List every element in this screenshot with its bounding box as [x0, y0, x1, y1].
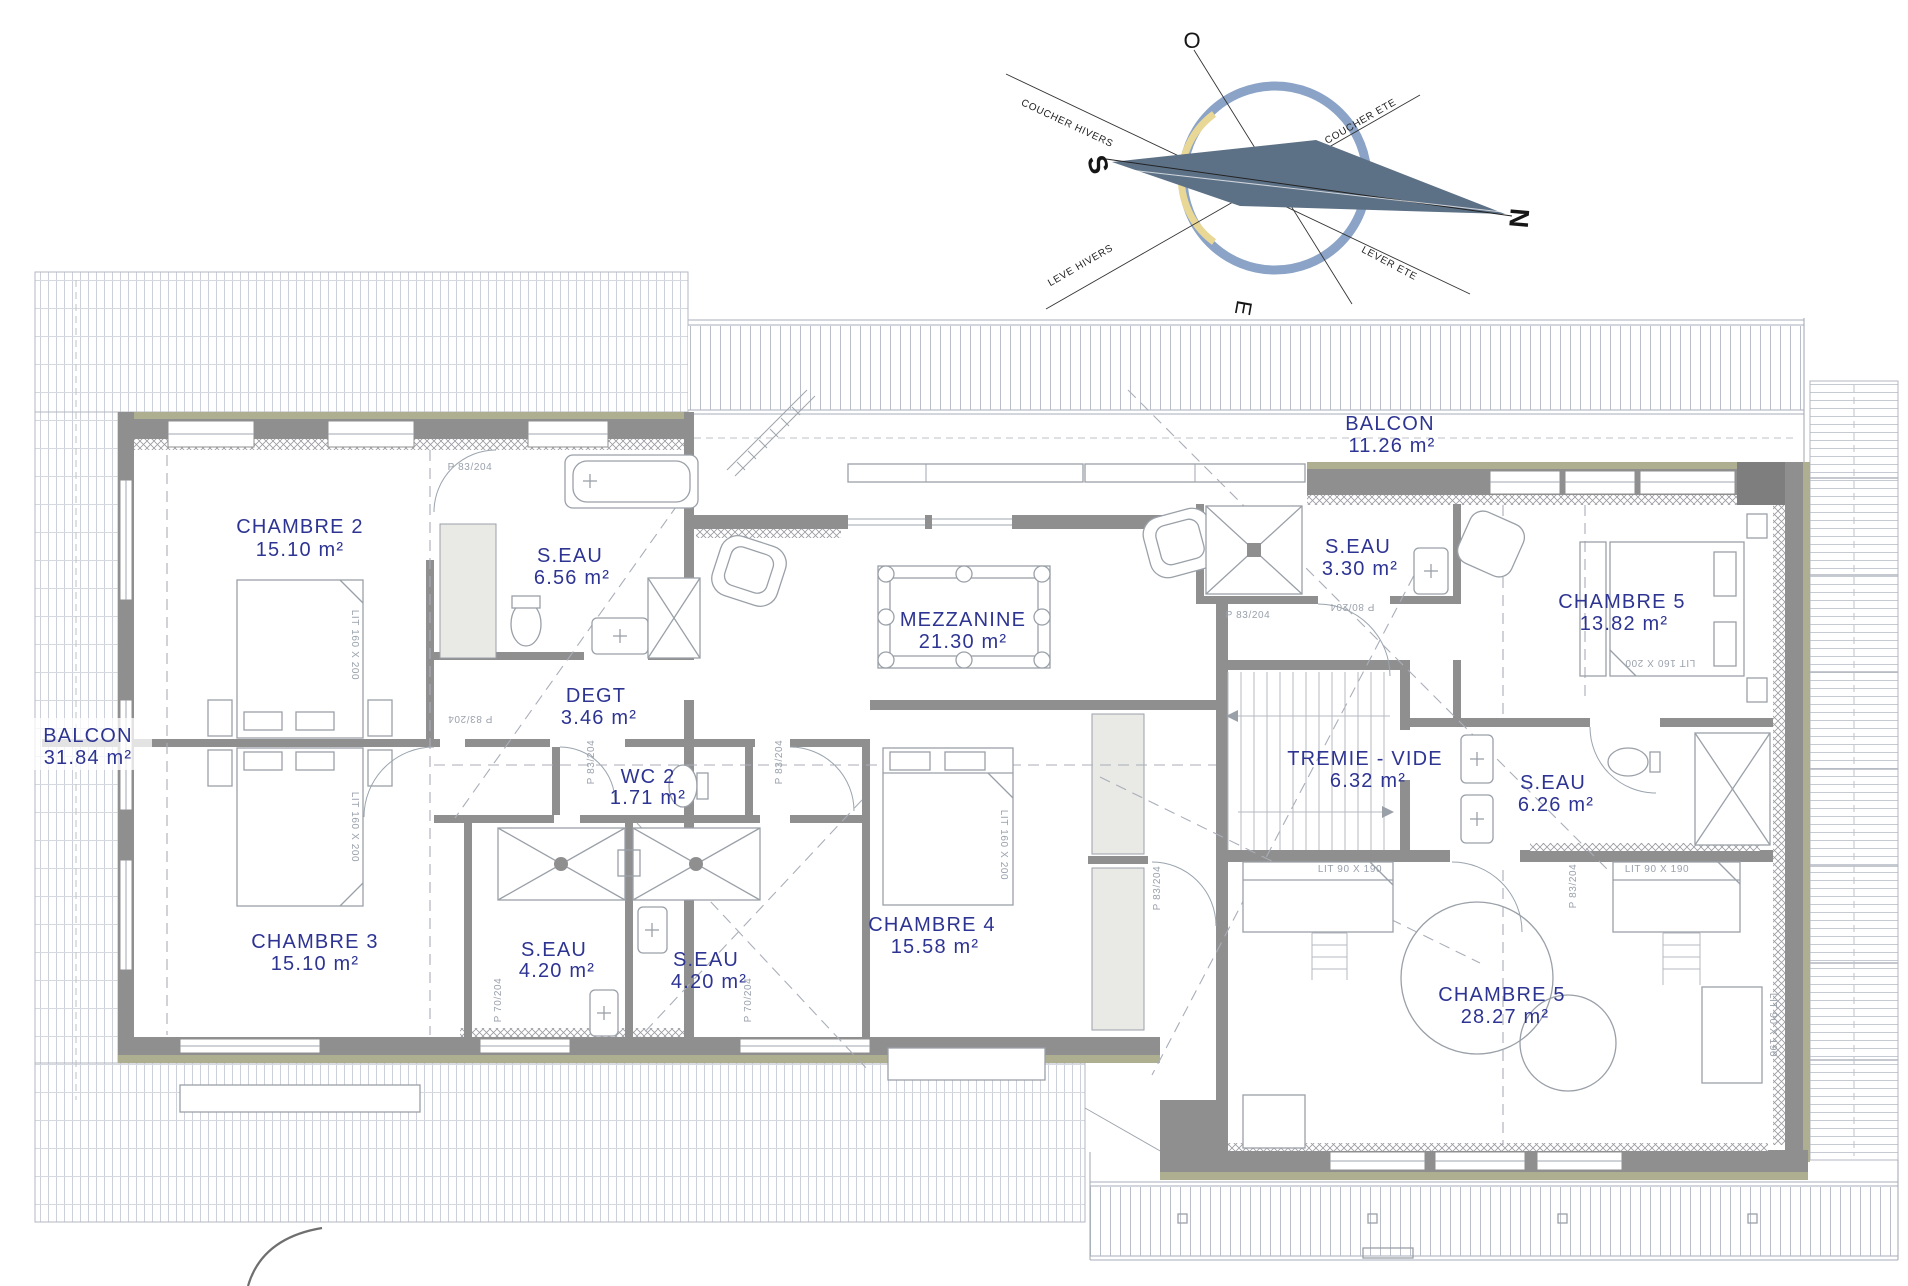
- wardrobe: [440, 524, 496, 658]
- svg-text:6.32 m²: 6.32 m²: [1330, 770, 1406, 792]
- sink-icon: [592, 618, 648, 654]
- shower-icon: [618, 828, 760, 900]
- room-label-seau-330: S.EAU 3.30 m²: [1322, 536, 1398, 580]
- svg-text:LEVER ETE: LEVER ETE: [1360, 245, 1419, 284]
- room-label-chambre5-haut: CHAMBRE 5 13.82 m²: [1558, 591, 1686, 635]
- svg-text:CHAMBRE 2: CHAMBRE 2: [236, 516, 364, 538]
- room-label-seau-420-gauche: S.EAU 4.20 m²: [519, 939, 595, 982]
- svg-text:BALCON: BALCON: [1345, 413, 1434, 435]
- room-label-balcon-ouest: BALCON 31.84 m²: [28, 718, 152, 770]
- toilet-icon: [1608, 748, 1660, 776]
- armchair-icon: [707, 531, 791, 611]
- room-label-wc2: WC 2 1.71 m²: [610, 766, 686, 809]
- compass-east: E: [1230, 299, 1257, 318]
- svg-text:31.84 m²: 31.84 m²: [44, 747, 133, 769]
- room-label-chambre3: CHAMBRE 3 15.10 m²: [251, 931, 379, 975]
- planter-box: [180, 1085, 420, 1112]
- bed-chambre2: [208, 580, 392, 738]
- svg-text:S.EAU: S.EAU: [537, 545, 603, 567]
- svg-text:15.58 m²: 15.58 m²: [891, 936, 980, 958]
- svg-text:S.EAU: S.EAU: [1325, 536, 1391, 558]
- svg-text:P 83/204: P 83/204: [1226, 610, 1271, 621]
- room-label-mezzanine: MEZZANINE 21.30 m²: [900, 609, 1026, 653]
- floor-plan-page: BALCON 31.84 m² CHAMBRE 2 15.10 m² S.EAU…: [0, 0, 1908, 1286]
- svg-text:COUCHER HIVERS: COUCHER HIVERS: [1019, 98, 1115, 150]
- svg-text:BALCON: BALCON: [43, 725, 132, 747]
- deck-top-left: [35, 272, 688, 412]
- svg-text:3.30 m²: 3.30 m²: [1322, 558, 1398, 580]
- svg-text:P 83/204: P 83/204: [1152, 866, 1163, 911]
- room-label-chambre5-bas: CHAMBRE 5 28.27 m²: [1438, 984, 1566, 1028]
- sink-icon: [638, 907, 667, 953]
- svg-text:P 83/204: P 83/204: [448, 462, 493, 473]
- bed-chambre4: [883, 748, 1013, 905]
- room-label-seau-420-droite: S.EAU 4.20 m²: [671, 949, 747, 993]
- room-label-balcon-nord: BALCON 11.26 m²: [1345, 413, 1435, 457]
- svg-text:LEVE HIVERS: LEVE HIVERS: [1046, 243, 1115, 289]
- svg-text:CHAMBRE 4: CHAMBRE 4: [868, 914, 996, 936]
- svg-text:15.10 m²: 15.10 m²: [271, 953, 360, 975]
- svg-text:P 80/204: P 80/204: [1330, 601, 1375, 612]
- svg-text:S.EAU: S.EAU: [521, 939, 587, 961]
- svg-text:LIT 90 X 190: LIT 90 X 190: [1767, 993, 1778, 1057]
- svg-text:LIT 90 X 190: LIT 90 X 190: [1625, 864, 1689, 875]
- svg-text:6.26 m²: 6.26 m²: [1518, 794, 1594, 816]
- sink-icon: [1414, 548, 1448, 594]
- armchair-icon: [1453, 507, 1529, 582]
- terrain-curve: [248, 1228, 322, 1286]
- shower-icon: [498, 828, 625, 900]
- floor-plan-drawing: BALCON 31.84 m² CHAMBRE 2 15.10 m² S.EAU…: [0, 0, 1908, 1286]
- svg-text:28.27 m²: 28.27 m²: [1461, 1006, 1550, 1028]
- bathtub-icon: [565, 455, 698, 508]
- deck-east-roof: [1810, 381, 1898, 1160]
- sink-icon: [1461, 795, 1493, 843]
- room-label-seau-626: S.EAU 6.26 m²: [1518, 772, 1594, 816]
- svg-text:CHAMBRE 3: CHAMBRE 3: [251, 931, 379, 953]
- svg-text:15.10 m²: 15.10 m²: [256, 539, 345, 561]
- svg-text:P 70/204: P 70/204: [493, 978, 504, 1023]
- room-label-tremie: TREMIE - VIDE 6.32 m²: [1287, 748, 1443, 792]
- svg-text:DEGT: DEGT: [566, 685, 626, 707]
- svg-text:P 70/204: P 70/204: [743, 978, 754, 1023]
- svg-text:S.EAU: S.EAU: [673, 949, 739, 971]
- svg-text:LIT 160 X 200: LIT 160 X 200: [1625, 657, 1695, 668]
- svg-text:LIT 90 X 190: LIT 90 X 190: [1318, 864, 1382, 875]
- svg-text:P 83/204: P 83/204: [586, 740, 597, 785]
- room-label-degt: DEGT 3.46 m²: [561, 685, 637, 729]
- svg-text:LIT 160 X 200: LIT 160 X 200: [998, 810, 1009, 880]
- svg-text:CHAMBRE 5: CHAMBRE 5: [1438, 984, 1566, 1006]
- svg-text:LIT 160 X 200: LIT 160 X 200: [349, 610, 360, 680]
- room-label-chambre2: CHAMBRE 2 15.10 m²: [236, 516, 364, 561]
- svg-text:P 83/204: P 83/204: [774, 740, 785, 785]
- deck-north-balcony: [688, 318, 1804, 482]
- svg-text:MEZZANINE: MEZZANINE: [900, 609, 1026, 631]
- room-label-seau-656: S.EAU 6.56 m²: [534, 545, 610, 589]
- svg-text:S.EAU: S.EAU: [1520, 772, 1586, 794]
- compass-rose: S N O E COUCHER HIVERS COUCHER ETE LEVE …: [1006, 28, 1535, 317]
- svg-text:4.20 m²: 4.20 m²: [671, 971, 747, 993]
- svg-text:11.26 m²: 11.26 m²: [1348, 435, 1435, 457]
- svg-text:CHAMBRE 5: CHAMBRE 5: [1558, 591, 1686, 613]
- svg-text:WC 2: WC 2: [621, 766, 676, 788]
- sink-icon: [1461, 735, 1493, 783]
- sink-icon: [590, 990, 618, 1036]
- compass-north: N: [1503, 207, 1535, 229]
- round-rug: [1401, 902, 1553, 1054]
- svg-text:6.56 m²: 6.56 m²: [534, 567, 610, 589]
- svg-text:LIT 160 X 200: LIT 160 X 200: [349, 792, 360, 862]
- shower-icon: [648, 578, 700, 658]
- svg-text:21.30 m²: 21.30 m²: [919, 631, 1008, 653]
- shower-icon: [1206, 506, 1302, 594]
- svg-text:3.46 m²: 3.46 m²: [561, 707, 637, 729]
- svg-text:1.71 m²: 1.71 m²: [610, 787, 686, 809]
- compass-west: O: [1183, 28, 1200, 53]
- svg-text:TREMIE - VIDE: TREMIE - VIDE: [1287, 748, 1443, 770]
- svg-text:13.82 m²: 13.82 m²: [1580, 613, 1669, 635]
- svg-text:P 83/204: P 83/204: [448, 713, 493, 724]
- compass-south: S: [1081, 152, 1115, 177]
- bed-chambre3: [208, 748, 392, 906]
- compass-needle: [1112, 140, 1505, 214]
- svg-text:4.20 m²: 4.20 m²: [519, 960, 595, 982]
- room-label-chambre4: CHAMBRE 4 15.58 m²: [868, 914, 996, 958]
- svg-text:P 83/204: P 83/204: [1568, 864, 1579, 909]
- shower-icon: [1695, 733, 1770, 845]
- toilet-icon: [511, 596, 541, 646]
